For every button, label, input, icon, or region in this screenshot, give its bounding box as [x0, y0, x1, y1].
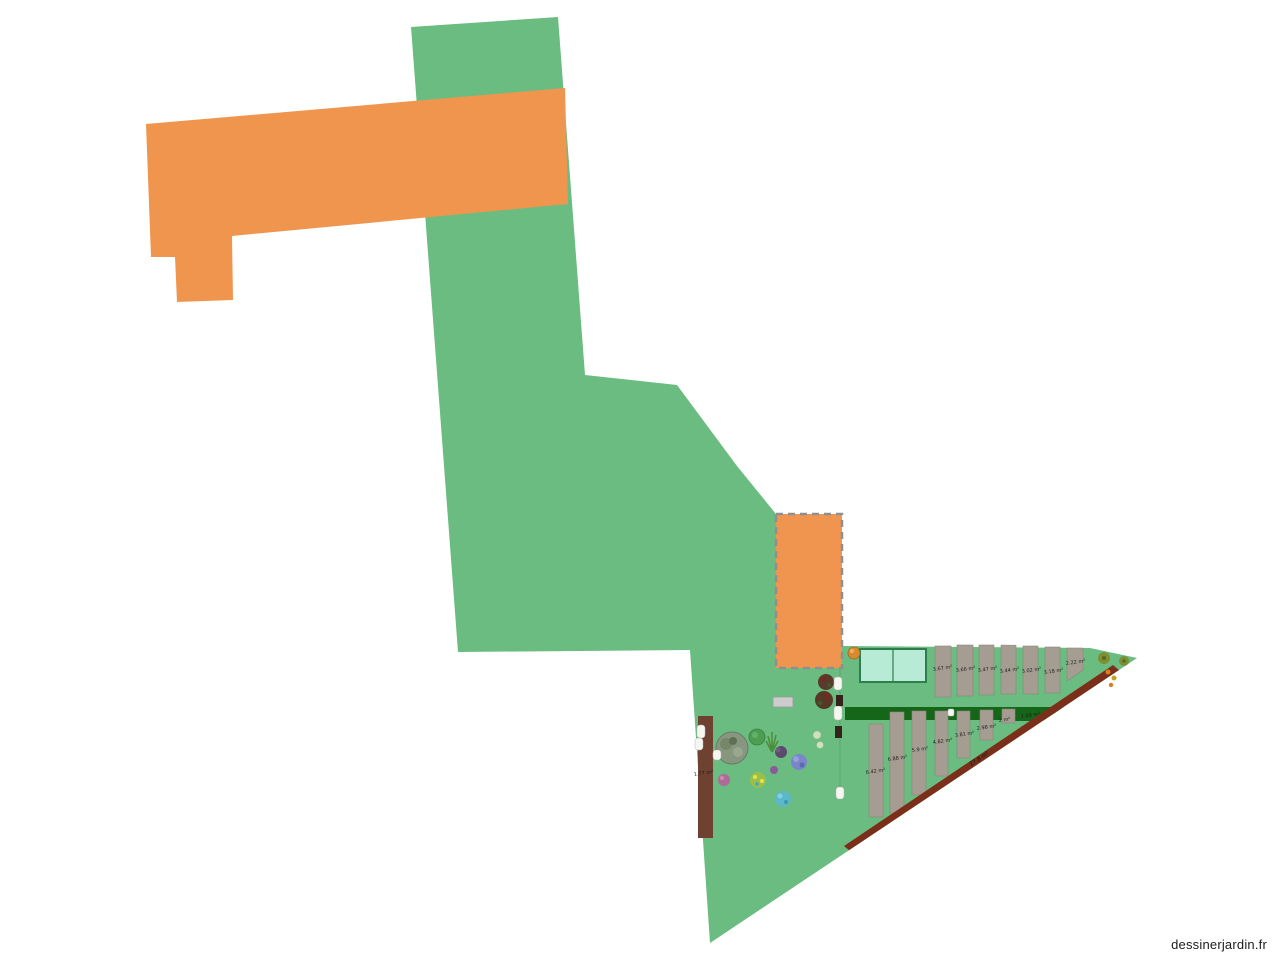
- compost-box[interactable]: [836, 695, 843, 706]
- cyan-flower-icon[interactable]: [775, 791, 791, 807]
- olive-star-plant-icon[interactable]: [1098, 652, 1110, 664]
- large-shrub-icon[interactable]: [716, 732, 748, 764]
- dark-red-bush-icon[interactable]: [815, 691, 833, 709]
- plant-tag[interactable]: [834, 706, 842, 720]
- dark-red-bush-icon[interactable]: [818, 674, 834, 690]
- plant-tag[interactable]: [836, 787, 844, 799]
- compost-box[interactable]: [835, 726, 842, 738]
- plant-tag[interactable]: [697, 725, 705, 738]
- magenta-flower-icon[interactable]: [718, 774, 730, 786]
- orange-flower-icon[interactable]: [848, 647, 860, 659]
- blue-flower-icon[interactable]: [791, 754, 807, 770]
- plant-tag[interactable]: [948, 709, 954, 716]
- plant-tag[interactable]: [713, 750, 721, 760]
- plant-tag[interactable]: [695, 738, 703, 750]
- annex-building-dashed[interactable]: [776, 514, 842, 668]
- garden-plan-canvas: 3.67 m² 3.66 m² 3.47 m² 3.44 m² 3.02 m² …: [0, 0, 1280, 960]
- paver-slab[interactable]: [773, 697, 793, 707]
- watermark: dessinerjardin.fr: [1171, 937, 1267, 952]
- yellow-green-flower-icon[interactable]: [750, 772, 766, 788]
- small-purple-flower-icon[interactable]: [770, 766, 778, 774]
- greenhouse[interactable]: [860, 649, 926, 682]
- round-bush-icon[interactable]: [749, 729, 765, 745]
- olive-star-plant-icon[interactable]: [1119, 656, 1129, 666]
- plant-tag[interactable]: [834, 677, 842, 690]
- purple-bush-icon[interactable]: [775, 746, 787, 758]
- raised-bed[interactable]: [890, 712, 904, 813]
